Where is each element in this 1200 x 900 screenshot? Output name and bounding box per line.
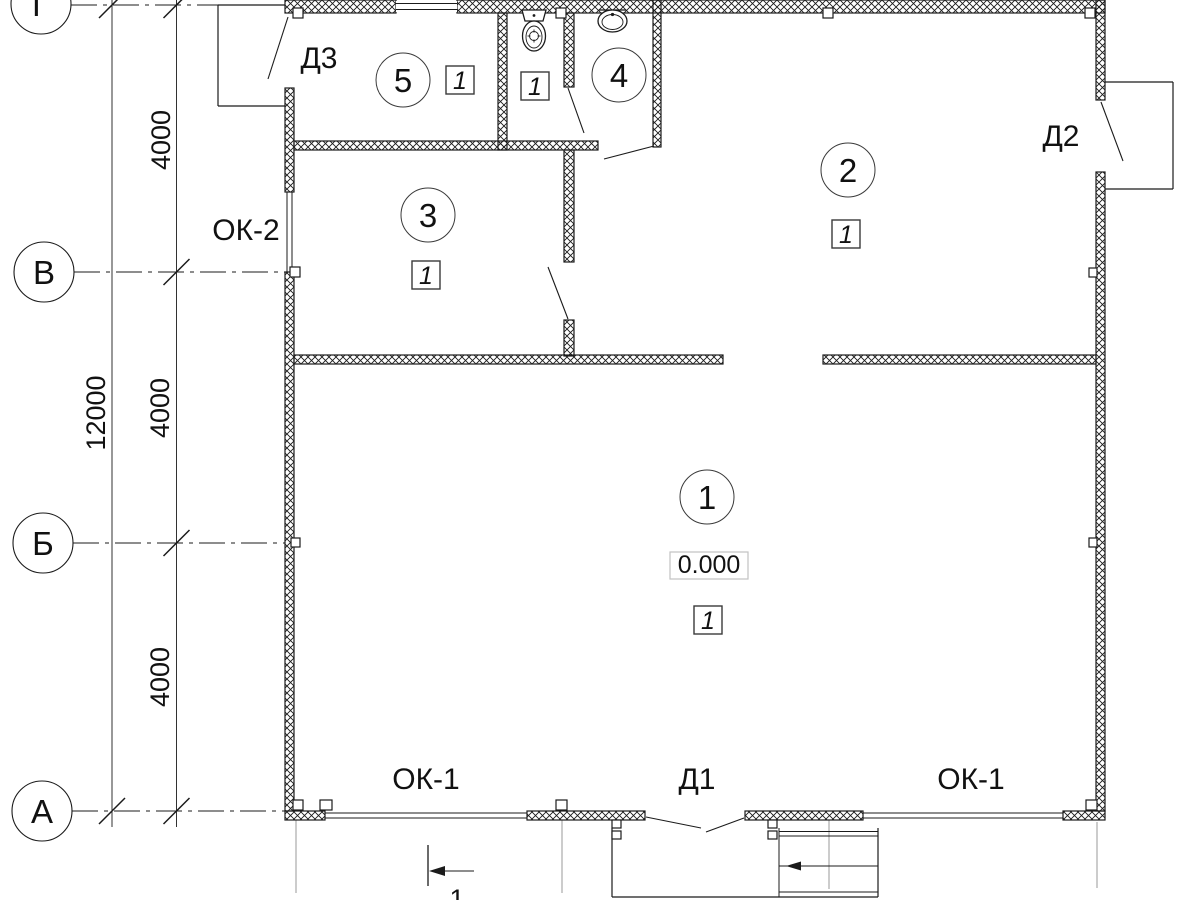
- wall-segment: [564, 150, 574, 262]
- wall-segment: [294, 141, 598, 150]
- door-label-d3: Д3: [300, 42, 337, 75]
- wall-segment: [285, 811, 325, 820]
- stair-direction-arrow: [786, 862, 801, 871]
- sink-icon: [598, 10, 627, 32]
- dimension-lines: 4000 4000 4000 12000: [71, 0, 285, 827]
- room-markers: 1 2 3 4 5: [376, 48, 875, 524]
- axis-label-a: А: [31, 793, 53, 830]
- type-mark-wc: 1: [528, 73, 542, 101]
- window-ok2: [287, 192, 292, 272]
- window-top: [396, 1, 457, 12]
- axis-label-b: Б: [32, 525, 54, 562]
- windows: [287, 1, 1063, 818]
- room-number-4: 4: [610, 57, 628, 94]
- door-leaves: [268, 17, 1123, 832]
- window-label-ok1-right: ОК-1: [937, 763, 1005, 796]
- room-number-1: 1: [698, 479, 716, 516]
- type-mark-room1: 1: [701, 607, 715, 635]
- door-label-d2: Д2: [1042, 120, 1079, 153]
- door-leaf-room4: [604, 146, 654, 159]
- dim-4000-bot: 4000: [145, 647, 175, 707]
- floor-plan-drawing: 4000 4000 4000 12000 Г В Б А: [0, 0, 1200, 900]
- dim-12000: 12000: [81, 375, 111, 450]
- window-label-ok1-left: ОК-1: [392, 763, 460, 796]
- door-leaf-d1-right: [706, 818, 744, 832]
- toilet-icon: [522, 10, 546, 51]
- wall-segment: [285, 88, 294, 192]
- door-leaf-d2: [1101, 102, 1123, 161]
- room-number-5: 5: [394, 62, 412, 99]
- room-number-3: 3: [419, 197, 437, 234]
- wall-segment: [457, 0, 1105, 13]
- dim-4000-mid: 4000: [145, 378, 175, 438]
- wall-segment: [823, 355, 1096, 364]
- dim-4000-top: 4000: [146, 110, 176, 170]
- axis-label-v: В: [33, 254, 55, 291]
- door-leaf-room3: [548, 267, 568, 319]
- room-type-marks: 1 1 1 1 1: [412, 66, 860, 635]
- entrance-stairs: [779, 828, 878, 897]
- section-mark: 1: [428, 845, 474, 900]
- wall-segment: [1096, 0, 1105, 100]
- type-mark-room2: 1: [839, 221, 853, 249]
- type-mark-room3: 1: [419, 262, 433, 290]
- wall-segment: [745, 811, 863, 820]
- axis-continuation-lines: [296, 820, 1097, 893]
- wall-segment: [653, 0, 661, 147]
- entrance-porch: [612, 828, 878, 897]
- window-ok1-left: [325, 813, 527, 818]
- wall-segment: [498, 13, 507, 150]
- wall-segment: [564, 13, 574, 87]
- door-leaf-d1-left: [646, 817, 701, 828]
- wall-segment: [527, 811, 645, 820]
- porch-top-left: [218, 5, 285, 106]
- walls: [285, 0, 1105, 820]
- wall-segment: [1063, 811, 1105, 820]
- door-label-d1: Д1: [678, 763, 715, 796]
- porch-top-right: [1105, 82, 1173, 189]
- section-arrow: [429, 866, 445, 876]
- door-leaf-wc: [568, 88, 584, 133]
- opening-labels: Д3 Д2 Д1 ОК-2 ОК-1 ОК-1: [212, 42, 1079, 796]
- axis-label-g: Г: [32, 0, 50, 23]
- jamb-markers: [290, 8, 1097, 839]
- type-mark-room5: 1: [453, 67, 467, 95]
- axis-markers: Г В Б А: [11, 0, 74, 841]
- wall-segment: [564, 320, 574, 356]
- window-ok1-right: [863, 813, 1063, 818]
- window-label-ok2: ОК-2: [212, 214, 280, 247]
- floor-plan-canvas: 4000 4000 4000 12000 Г В Б А: [0, 0, 1200, 900]
- door-leaf-d3: [268, 17, 288, 79]
- elevation-mark: 0.000: [670, 551, 748, 579]
- section-number: 1: [449, 884, 464, 900]
- room-number-2: 2: [839, 152, 857, 189]
- wall-segment: [294, 355, 723, 364]
- elevation-value: 0.000: [678, 551, 741, 579]
